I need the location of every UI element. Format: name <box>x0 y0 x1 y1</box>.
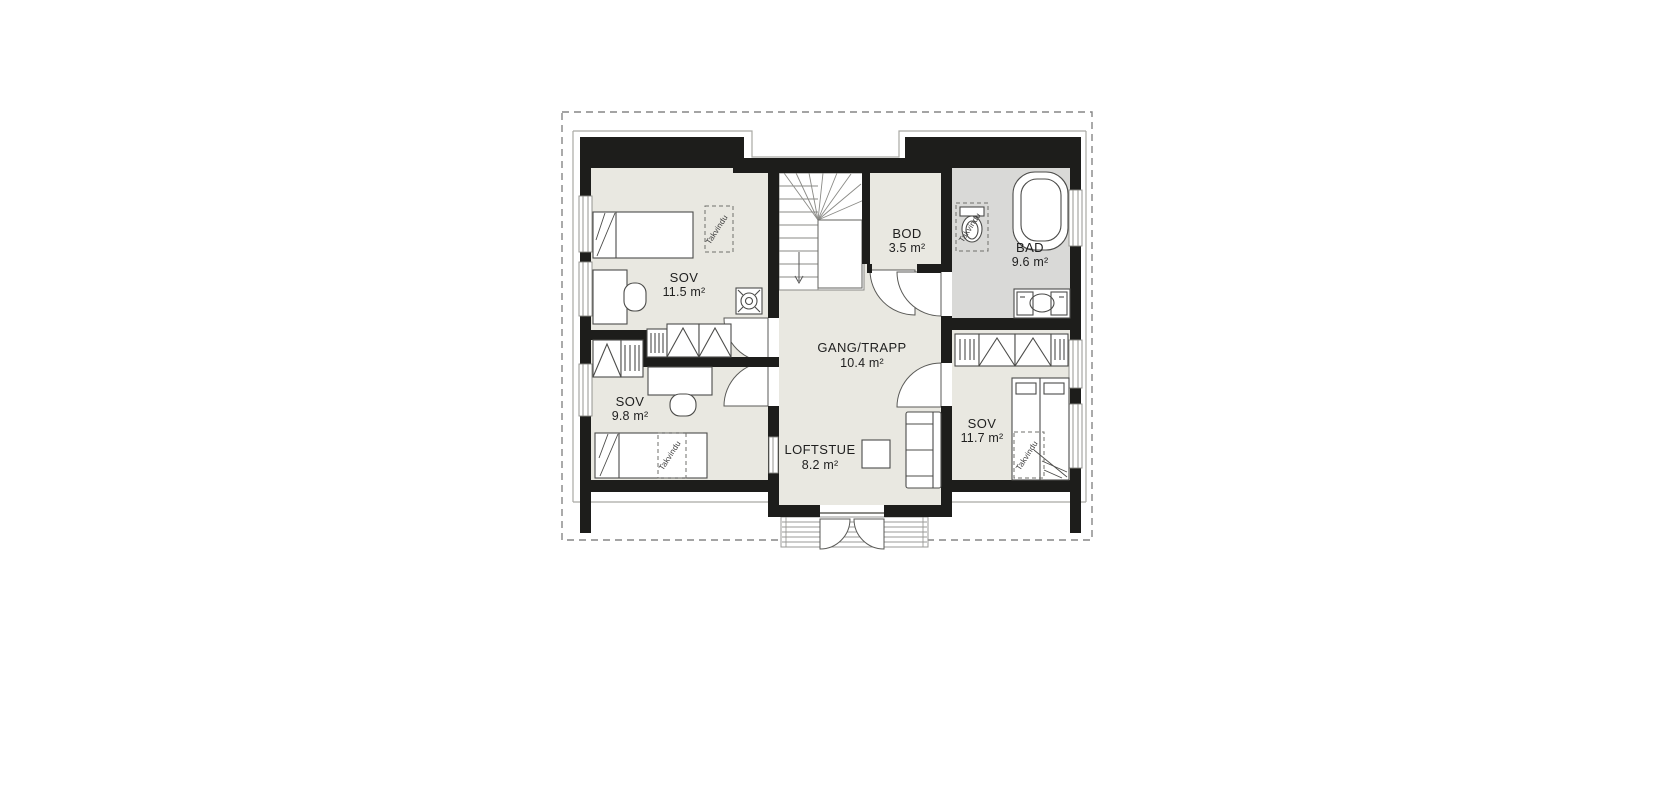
area-label-loftstue: 8.2 m² <box>802 458 839 472</box>
wardrobe <box>593 340 621 377</box>
wardrobe <box>979 334 1051 366</box>
floor-plan: Takvindu Takvindu Takvindu Takvindu SOV … <box>0 0 1670 800</box>
area-label-bod: 3.5 m² <box>889 241 926 255</box>
wall-right-wing-bottom <box>941 480 1081 492</box>
office-chair <box>624 283 646 311</box>
wall-hall-right-upper <box>941 173 952 272</box>
window <box>579 364 592 416</box>
wardrobe-hatch <box>647 329 667 357</box>
room-label-sov-9-8: SOV <box>616 394 645 409</box>
area-label-sov-11-5: 11.5 m² <box>663 285 706 299</box>
desk <box>593 270 627 324</box>
coffee-table <box>862 440 890 468</box>
wall-hall-right-lower <box>941 406 952 517</box>
room-label-bod: BOD <box>892 226 921 241</box>
area-label-sov-11-7: 11.7 m² <box>961 431 1004 445</box>
desk <box>648 367 712 395</box>
wall-stair-bod <box>862 173 870 264</box>
single-bed <box>595 433 707 478</box>
wardrobe-hatch <box>955 334 979 366</box>
wall-left-wing-bottom <box>580 480 779 492</box>
office-chair <box>670 394 696 416</box>
window <box>1069 404 1082 468</box>
wardrobe-hatch <box>1051 334 1068 366</box>
window <box>1069 340 1082 388</box>
wall-hall-left-upper <box>768 173 779 318</box>
room-label-sov-11-7: SOV <box>968 416 997 431</box>
room-label-gang-trapp: GANG/TRAPP <box>817 340 906 355</box>
wall-bad-bottom <box>941 318 1081 330</box>
wardrobe-hatch <box>621 340 643 377</box>
floor-plan-page: Takvindu Takvindu Takvindu Takvindu SOV … <box>0 0 1670 800</box>
sofa <box>906 412 941 488</box>
wall-bod-bottom-a <box>867 264 872 273</box>
bathtub <box>1013 172 1068 250</box>
single-bed <box>593 212 693 258</box>
wardrobe <box>667 324 731 357</box>
window <box>579 262 592 316</box>
room-label-bad: BAD <box>1016 240 1044 255</box>
wall-left-wing-top <box>580 137 744 168</box>
hall-niche <box>769 437 778 473</box>
sink-vanity <box>1014 289 1070 318</box>
room-label-sov-11-5: SOV <box>670 270 699 285</box>
window <box>1069 190 1082 246</box>
window <box>579 196 592 252</box>
area-label-sov-9-8: 9.8 m² <box>612 409 649 423</box>
wall-right-wing-top <box>905 137 1081 168</box>
room-label-loftstue: LOFTSTUE <box>784 442 855 457</box>
wall-loftstue-bottom-right <box>884 505 941 517</box>
wall-bod-bottom-b <box>917 264 941 273</box>
area-label-gang-trapp: 10.4 m² <box>840 356 884 370</box>
stairs <box>779 173 864 290</box>
area-label-bad: 9.6 m² <box>1012 255 1049 269</box>
wall-bedroom-divider-b <box>643 357 779 367</box>
chimney <box>736 288 762 314</box>
balcony-door-sill <box>820 512 884 514</box>
